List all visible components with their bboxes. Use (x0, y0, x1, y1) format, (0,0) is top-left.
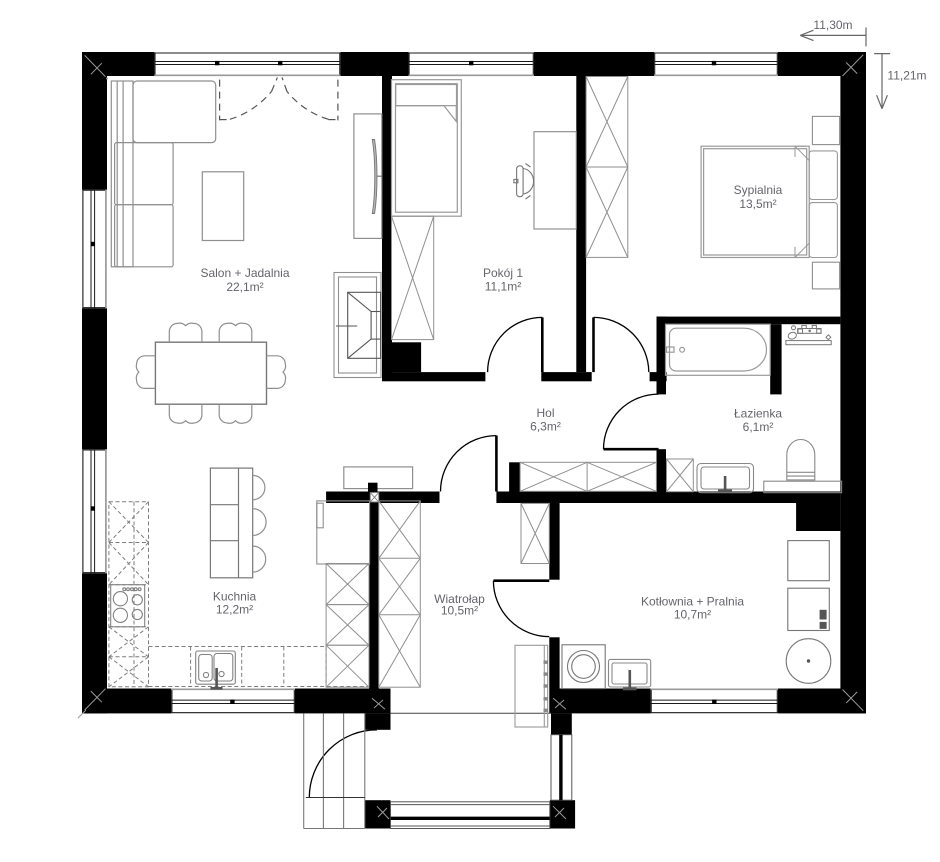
svg-text:6,3m²: 6,3m² (530, 420, 561, 434)
svg-text:11,21m: 11,21m (887, 69, 926, 83)
svg-text:10,7m²: 10,7m² (674, 608, 711, 622)
svg-text:11,1m²: 11,1m² (485, 280, 521, 294)
svg-text:Salon + Jadalnia: Salon + Jadalnia (200, 266, 289, 280)
svg-text:Kotłownia + Pralnia: Kotłownia + Pralnia (641, 595, 744, 609)
svg-text:Pokój 1: Pokój 1 (483, 266, 523, 280)
svg-text:11,30m: 11,30m (813, 18, 852, 32)
svg-text:Łazienka: Łazienka (734, 407, 782, 421)
svg-text:12,2m²: 12,2m² (216, 603, 253, 617)
svg-text:Hol: Hol (536, 406, 554, 420)
svg-text:13,5m²: 13,5m² (739, 197, 776, 211)
svg-text:Sypialnia: Sypialnia (734, 183, 783, 197)
svg-text:22,1m²: 22,1m² (226, 280, 263, 294)
svg-text:6,1m²: 6,1m² (743, 420, 774, 434)
svg-text:Kuchnia: Kuchnia (213, 589, 257, 603)
svg-text:10,5m²: 10,5m² (441, 604, 478, 618)
